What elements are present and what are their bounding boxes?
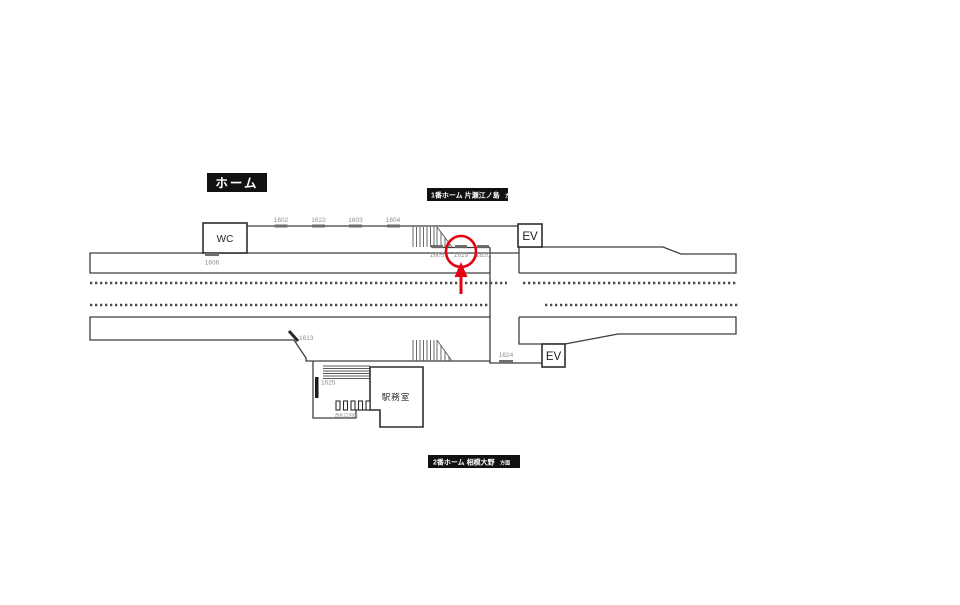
platform2-badge-suffix: 方面 [500,460,510,467]
ad-position-ticks [205,225,513,399]
position-label-1622: 1622 [311,217,326,224]
position-label-1625: 1625 [321,380,336,387]
wc-room: WC [203,223,247,253]
gate-icon [366,401,370,410]
gate-area-note: 改札口内側 [335,412,358,419]
track-lines [90,283,738,305]
position-label-1602: 1602 [274,217,289,224]
elevator-lower-label: EV [546,351,562,363]
home-badge: ホーム [207,173,267,192]
elevator-upper: EV [518,224,542,247]
position-label-1606: 1606 [205,260,220,267]
position-label-1605: 1605 [430,252,445,259]
position-label-1620: 1620 [476,252,491,259]
station-platform-map: 駅務室 改札口内側 WC EV EV 1602 1 [0,0,960,605]
svg-text:1番ホーム 片瀬江ノ島 方面: 1番ホーム 片瀬江ノ島 方面 [431,185,515,202]
platform1-badge-text: 1番ホーム 片瀬江ノ島 [431,191,500,200]
highlight-arrow-head-icon [455,262,468,277]
gate-icon [344,401,348,410]
platform2-direction-badge: 2番ホーム 相模大野 方面 [428,452,520,469]
position-1625-mark [315,377,319,398]
platform2-badge-text: 2番ホーム 相模大野 [433,458,495,467]
home-badge-label: ホーム [215,177,258,191]
position-label-1619: 1619 [454,252,469,259]
gate-icon [336,401,340,410]
position-label-1604: 1604 [386,217,401,224]
wc-label: WC [217,234,234,245]
svg-text:2番ホーム 相模大野 方面: 2番ホーム 相模大野 方面 [433,452,510,469]
position-label-1624: 1624 [499,352,514,359]
elevator-upper-label: EV [522,231,538,243]
station-diagram-canvas: 駅務室 改札口内側 WC EV EV 1602 1 [0,0,960,605]
elevator-lower: EV [542,344,565,367]
upper-stairs-hatch [413,227,452,247]
concourse-stair-treads [323,366,370,379]
platform1-badge-suffix: 方面 [505,193,515,200]
station-office-label: 駅務室 [382,392,411,402]
lower-stairs-hatch [413,340,452,361]
platform1-direction-badge: 1番ホーム 片瀬江ノ島 方面 [427,185,515,202]
gate-icon [359,401,363,410]
station-office: 駅務室 [370,367,423,427]
position-label-1603: 1603 [348,217,363,224]
position-label-1613: 1613 [299,335,314,342]
gate-icon [351,401,355,410]
